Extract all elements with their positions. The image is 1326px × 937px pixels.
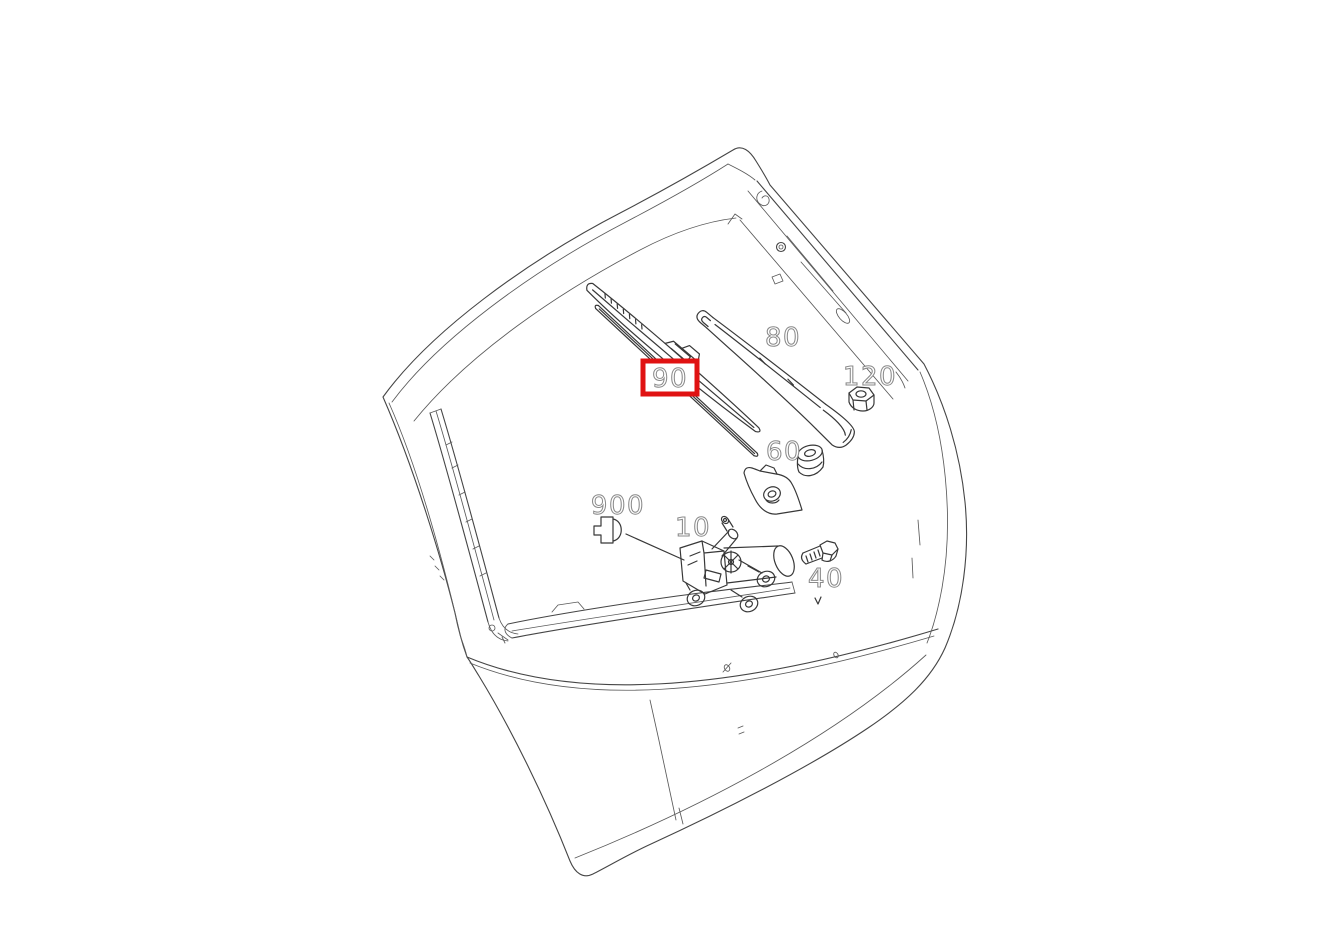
callouts: 80 90 120 60 900 10 40 [591,323,897,594]
bracket-art [744,465,802,514]
callout-80[interactable]: 80 [765,323,801,353]
arrow-mark [815,597,821,604]
diagram-canvas: 80 90 120 60 900 10 40 [0,0,1326,937]
callout-40[interactable]: 40 [808,564,844,594]
rail-bolt-icon [777,243,786,252]
callout-120[interactable]: 120 [843,362,897,392]
callout-90[interactable]: 90 [652,364,688,394]
callout-60[interactable]: 60 [766,437,802,467]
callout-10[interactable]: 10 [675,513,711,543]
callout-900[interactable]: 900 [591,491,645,521]
tailgate-outline-art [383,148,967,876]
lower-panel-art [467,372,947,858]
parts-diagram-page: 80 90 120 60 900 10 40 [0,0,1326,937]
window-frame-art [389,403,518,657]
wiper-blade-art [583,270,773,437]
connector-plug-icon [594,517,684,560]
window-sill-art [489,582,795,643]
